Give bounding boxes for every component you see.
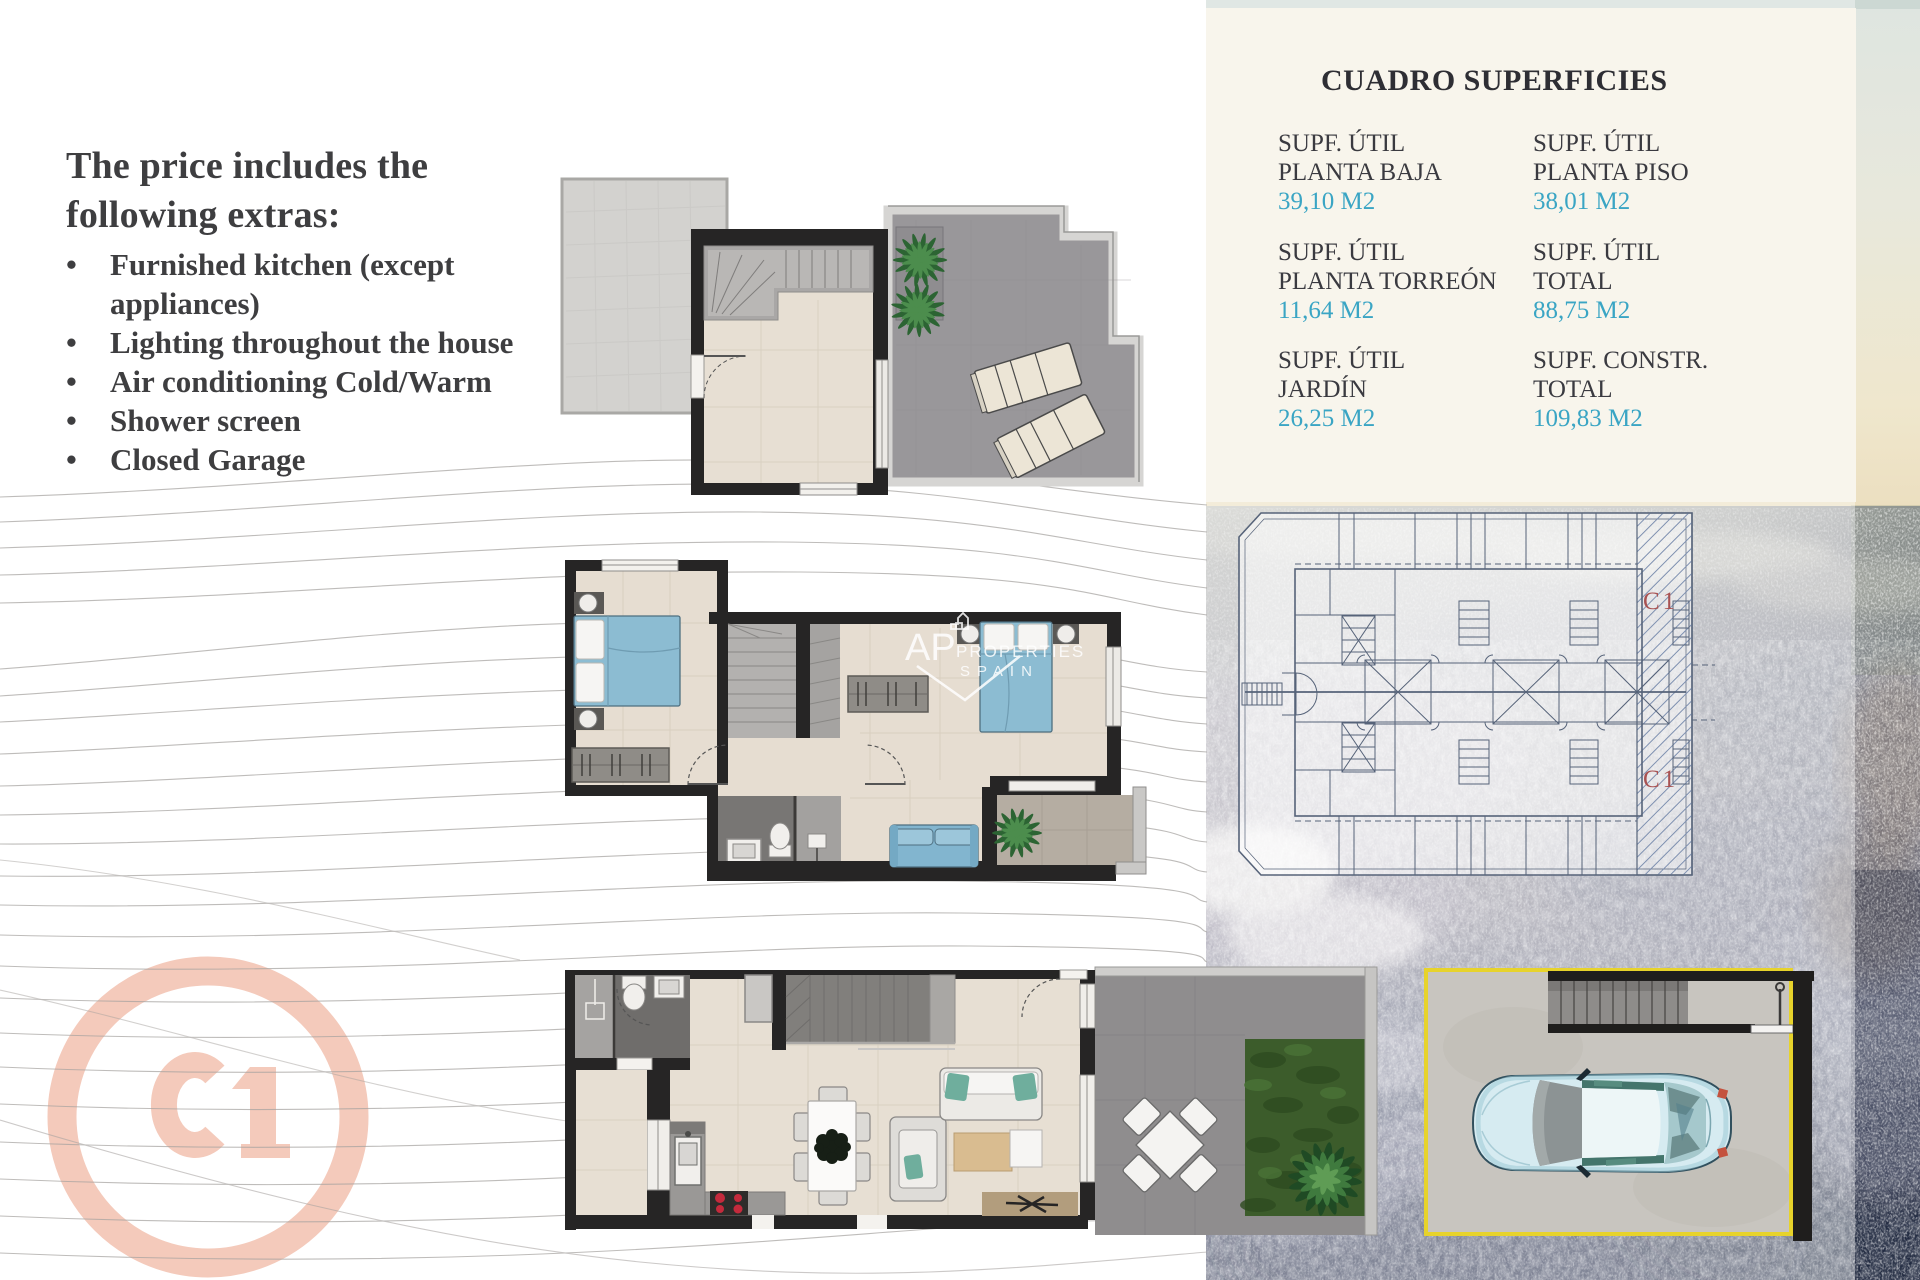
svg-text:AP: AP [905,627,956,669]
svg-text:PROPERTIES: PROPERTIES [956,642,1085,661]
svg-text:C1: C1 [1643,766,1678,793]
svg-text:C1: C1 [1643,588,1678,615]
